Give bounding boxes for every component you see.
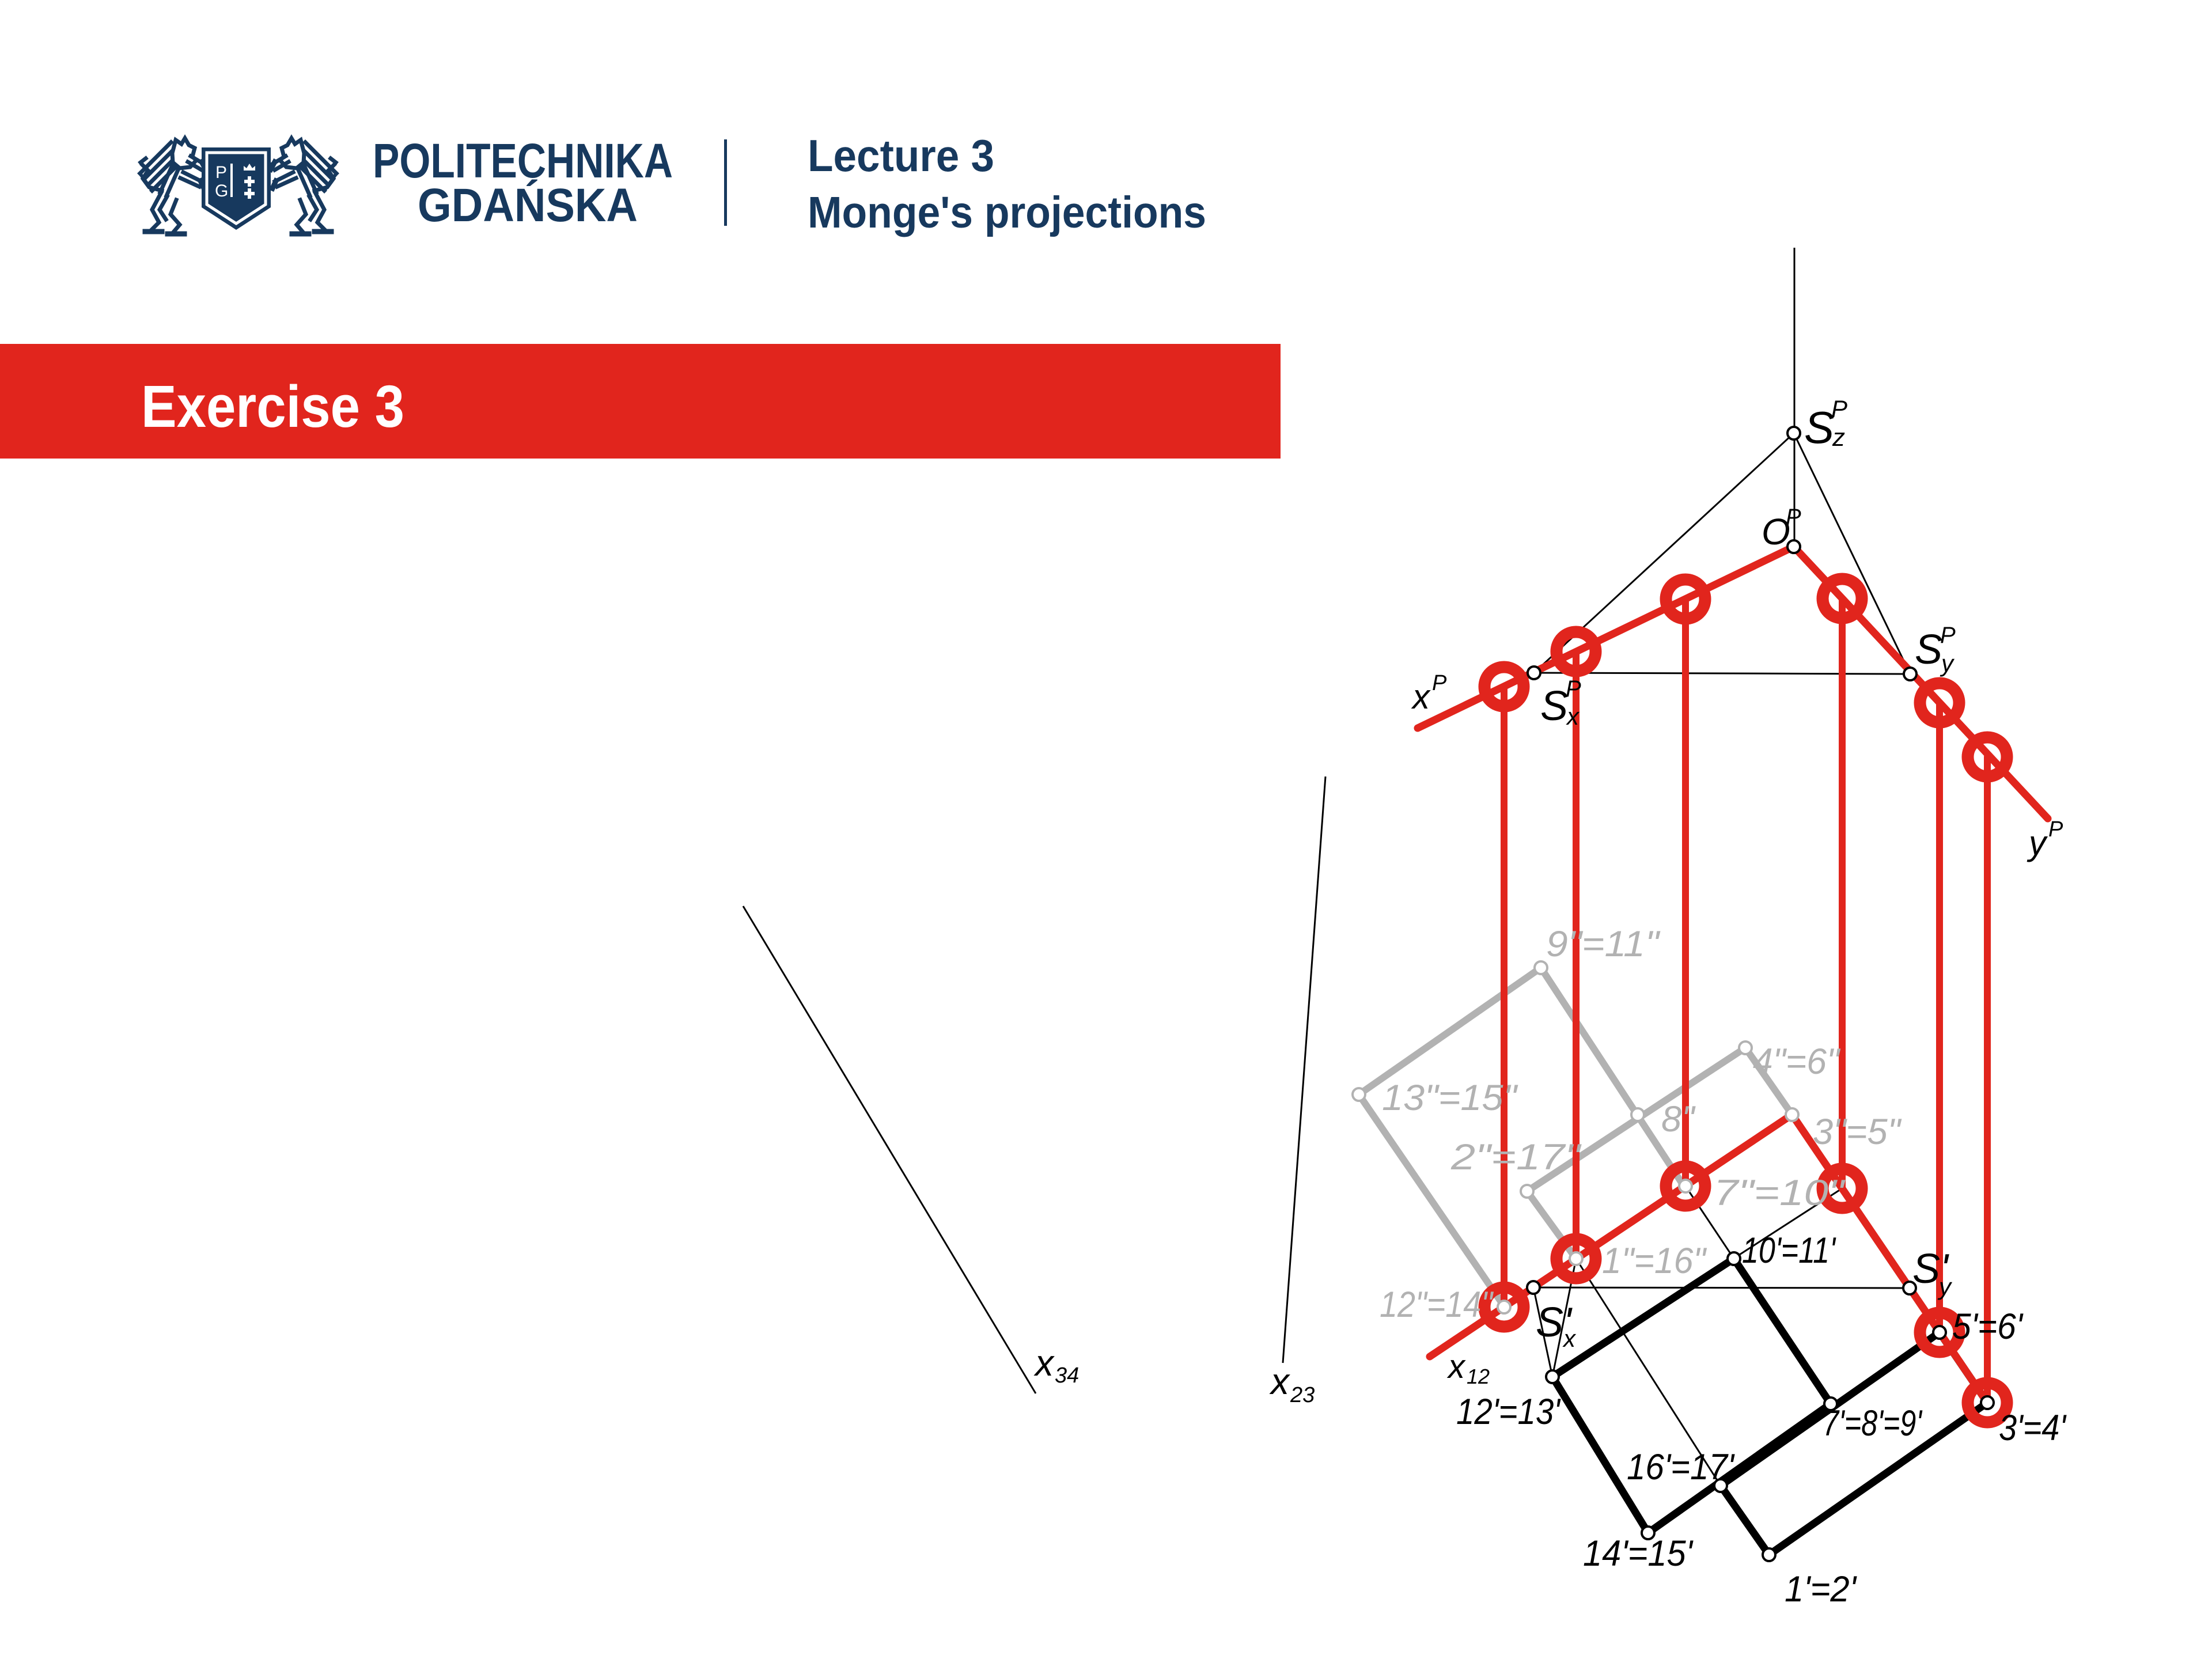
svg-text:3'=4': 3'=4' — [1999, 1408, 2067, 1448]
svg-text:8": 8" — [1661, 1099, 1696, 1139]
svg-text:34: 34 — [1055, 1363, 1079, 1388]
svg-text:13"=15": 13"=15" — [1382, 1078, 1518, 1118]
svg-text:2"=17": 2"=17" — [1450, 1137, 1582, 1177]
svg-text:Monge's projections: Monge's projections — [808, 188, 1206, 237]
svg-text:P: P — [1432, 671, 1447, 695]
svg-text:x: x — [1411, 677, 1431, 716]
svg-text:x: x — [1566, 703, 1580, 730]
svg-text:Exercise 3: Exercise 3 — [141, 373, 404, 440]
svg-text:7"=10": 7"=10" — [1714, 1173, 1846, 1213]
svg-text:S: S — [1804, 402, 1834, 453]
svg-text:x: x — [1446, 1348, 1466, 1385]
svg-text:P: P — [1940, 623, 1956, 648]
svg-text:5'=6': 5'=6' — [1952, 1306, 2024, 1347]
svg-text:z: z — [1832, 423, 1845, 452]
svg-text:16'=17': 16'=17' — [1627, 1447, 1735, 1487]
svg-text:y: y — [2027, 824, 2048, 862]
svg-text:3"=5": 3"=5" — [1813, 1112, 1902, 1152]
svg-text:y: y — [1937, 1273, 1953, 1300]
svg-text:x: x — [1269, 1361, 1290, 1402]
svg-text:P: P — [1786, 505, 1801, 530]
svg-text:12"=14": 12"=14" — [1380, 1285, 1494, 1325]
svg-text:P: P — [1566, 676, 1581, 702]
svg-text:G: G — [215, 181, 228, 200]
svg-text:14'=15': 14'=15' — [1583, 1533, 1694, 1574]
svg-text:7'=8'=9': 7'=8'=9' — [1823, 1403, 1923, 1444]
svg-text:P: P — [215, 163, 227, 182]
svg-text:1'=2': 1'=2' — [1785, 1569, 1857, 1609]
svg-text:x: x — [1562, 1325, 1577, 1352]
svg-text:12'=13': 12'=13' — [1456, 1392, 1561, 1432]
svg-text:P: P — [2048, 817, 2063, 842]
svg-text:P: P — [1831, 395, 1847, 422]
svg-text:4"=6": 4"=6" — [1753, 1041, 1841, 1082]
svg-text:12: 12 — [1467, 1365, 1490, 1388]
svg-text:Lecture 3: Lecture 3 — [808, 130, 994, 181]
svg-text:S: S — [1540, 683, 1568, 729]
svg-text:GDAŃSKA: GDAŃSKA — [418, 179, 638, 232]
svg-text:x: x — [1033, 1342, 1055, 1384]
svg-text:y: y — [1940, 650, 1955, 677]
svg-text:23: 23 — [1290, 1383, 1315, 1407]
svg-text:9"=11": 9"=11" — [1546, 924, 1661, 964]
svg-text:10'=11': 10'=11' — [1742, 1230, 1836, 1271]
svg-text:1"=16": 1"=16" — [1602, 1241, 1707, 1281]
svg-text:S: S — [1915, 627, 1942, 673]
